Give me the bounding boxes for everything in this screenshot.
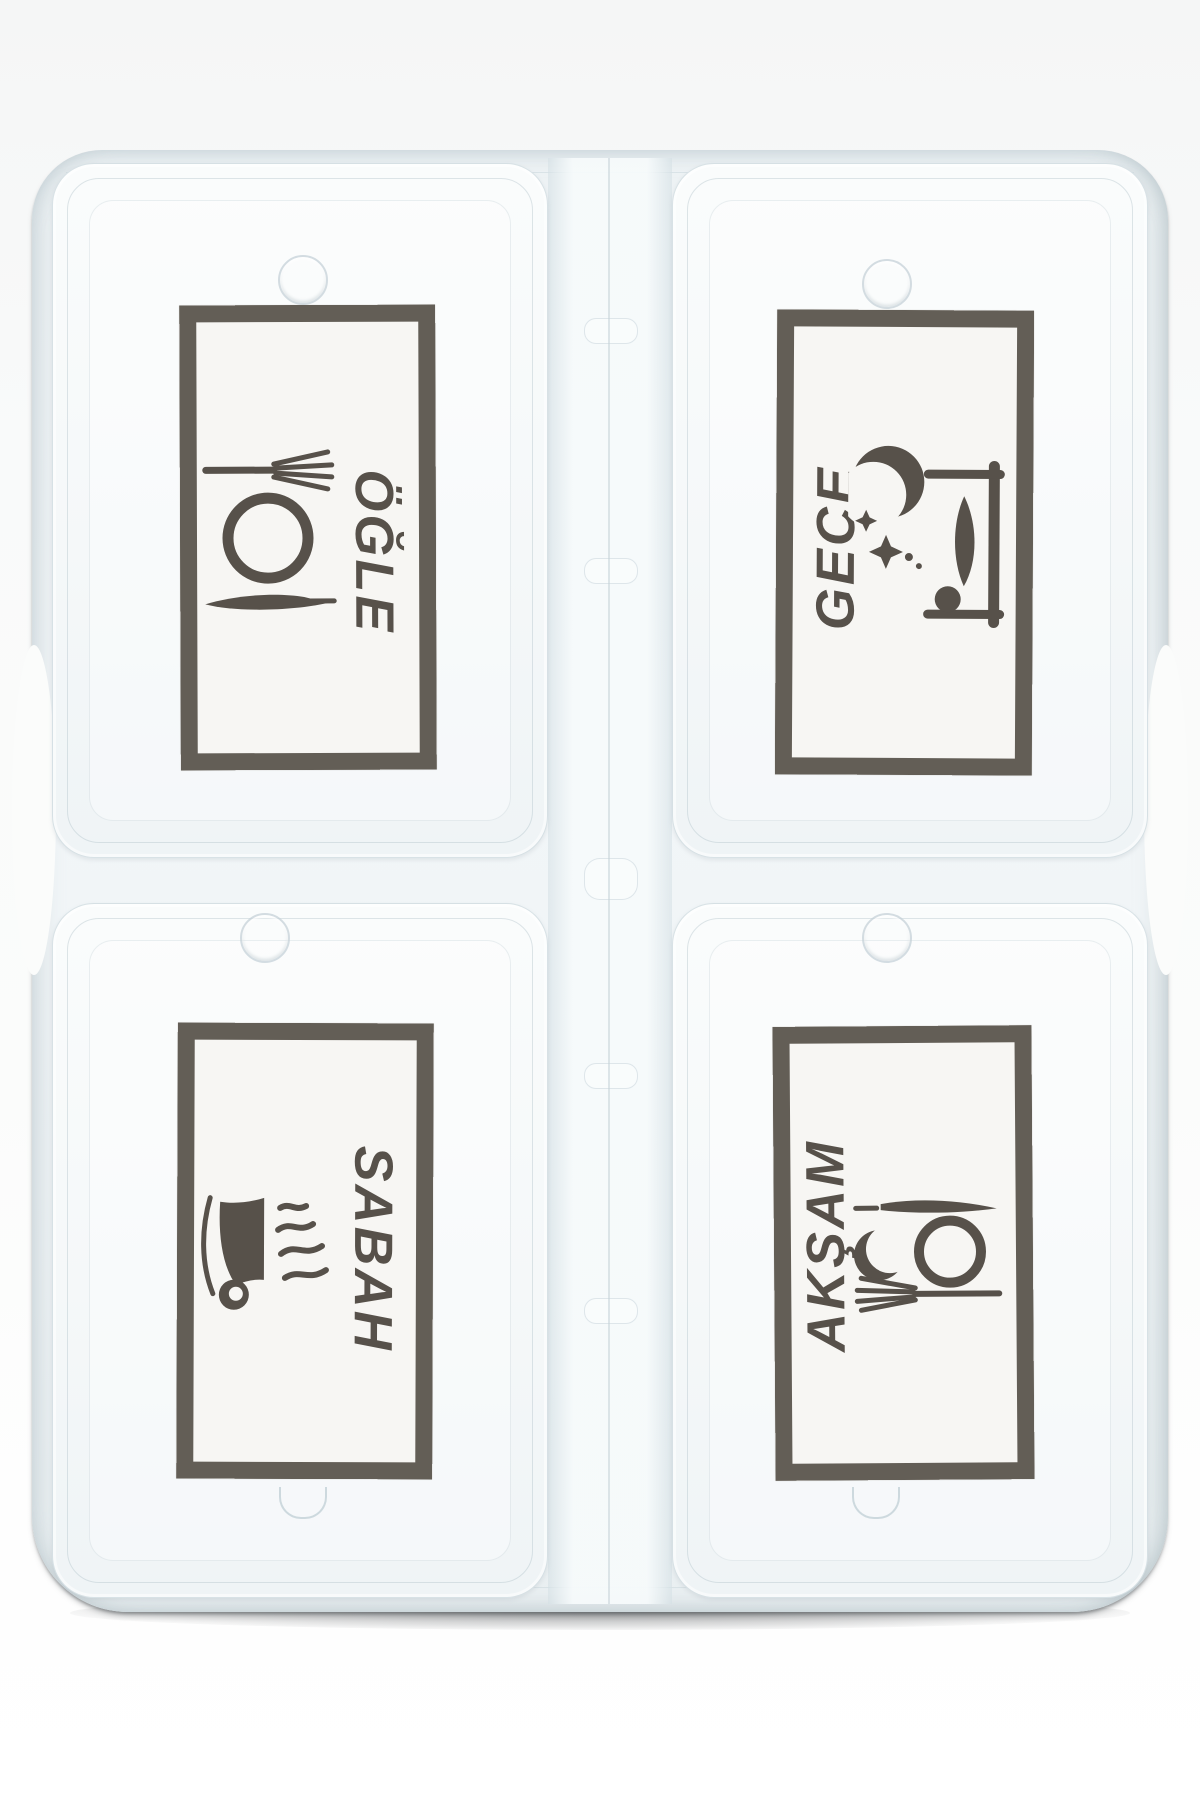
bed-icon: [928, 466, 1001, 622]
hinge-nub: [584, 558, 638, 584]
meal-time-label-text: SABAH: [342, 1146, 405, 1353]
fork-icon: [857, 1277, 999, 1310]
lid-latch-circle: [240, 913, 290, 963]
compartment-top-left: ÖĞLE: [52, 163, 548, 858]
fork-icon: [206, 452, 332, 489]
plate-icon: [228, 498, 308, 578]
compartment-top-right: GECE: [672, 163, 1148, 858]
steam-icon: [278, 1206, 326, 1278]
pillbox: ÖĞLE GECE: [32, 150, 1168, 1612]
plate-icon: [919, 1220, 981, 1282]
knife-icon: [856, 1200, 997, 1213]
lid-latch-circle: [862, 259, 912, 309]
knife-icon: [205, 595, 334, 610]
hinge-nub: [584, 318, 638, 344]
label-aksam: AKŞAM: [772, 1025, 1034, 1481]
crescent-moon-icon: [854, 1225, 914, 1280]
right-waist-notch: [1144, 645, 1188, 975]
coffee-cup-icon: [203, 1198, 264, 1310]
hinge-nub: [584, 1298, 638, 1324]
label-ogle: ÖĞLE: [179, 305, 437, 771]
crescent-plate-fork-knife-icon: [853, 1192, 1004, 1313]
lid-latch-circle: [862, 913, 912, 963]
hinge-strip: [548, 158, 672, 1604]
left-waist-notch: [12, 645, 56, 975]
compartment-bottom-left: SABAH: [52, 903, 548, 1598]
plate-fork-knife-icon: [200, 440, 341, 650]
meal-time-label-text: ÖĞLE: [343, 469, 406, 634]
meal-time-label-text: AKŞAM: [794, 1139, 857, 1352]
hinge-nub: [584, 1063, 638, 1089]
label-gece: GECE: [775, 309, 1034, 775]
lid-latch-circle: [278, 255, 328, 305]
product-photo-stage: ÖĞLE GECE: [0, 0, 1200, 1800]
compartment-bottom-right: AKŞAM: [672, 903, 1148, 1598]
hinge-nub: [584, 858, 638, 900]
crescent-moon-icon: [848, 446, 925, 528]
steaming-cup-icon: [196, 1192, 341, 1323]
label-sabah: SABAH: [176, 1023, 434, 1480]
bed-moon-stars-icon: [848, 436, 1009, 632]
